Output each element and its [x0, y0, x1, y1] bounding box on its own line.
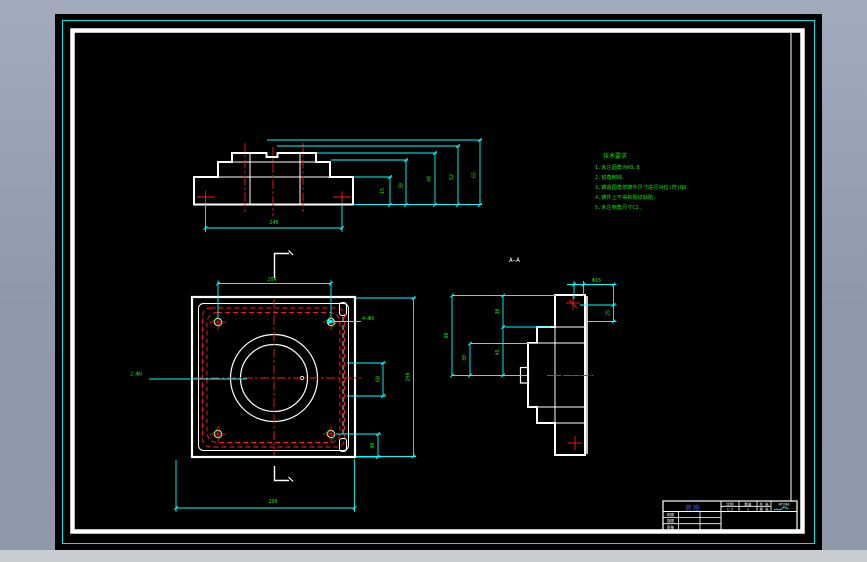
note-line: 1.未注圆角为R0.8 [595, 163, 640, 171]
note-line: 5.未注倒角尺寸C2. [595, 203, 642, 211]
row-label: 描图 [667, 518, 675, 523]
dim-text: 30 [462, 355, 468, 361]
dim-text: 25 [606, 310, 612, 316]
dim-text: 60 [376, 376, 382, 382]
note-line: 3.铸造圆角按铸件尺寸进行对位(符)N8. [595, 183, 690, 191]
dim-text: 290 [268, 499, 277, 505]
dim-text: 52 [449, 174, 455, 180]
material-value: HT200 [779, 502, 790, 506]
dim-text: 40 [427, 176, 433, 182]
dim-text: 290 [406, 372, 412, 381]
hole-callout: 4-Φ9 [362, 316, 374, 322]
dim-text: 245 [269, 220, 278, 226]
dim-text: 40 [370, 442, 376, 448]
sheet-label2: 第 张 [759, 507, 769, 512]
row-label: 制图 [667, 512, 675, 517]
hole-callout: 2-Φ8 [130, 372, 142, 378]
dim-text: 45 [495, 349, 501, 355]
dim-text: 30 [399, 183, 405, 189]
scale-label: 比例 [726, 501, 734, 506]
sheet-frame [55, 14, 822, 550]
part-name: 底座 [685, 503, 701, 512]
notes-title: 技术要求 [603, 152, 627, 160]
dim-text: 15 [380, 188, 386, 194]
row-label: 审核 [667, 524, 675, 529]
note-line: 4.铸件上不得有裂纹缺陷. [595, 193, 656, 201]
sheet-label: 共 张 [759, 501, 769, 506]
section-label: A—A [509, 257, 520, 264]
qty-label: 数量 [744, 501, 752, 506]
note-line: 2.锐角倒钝. [595, 173, 625, 181]
paper-margin [55, 14, 822, 550]
cad-drawing-canvas: 15 30 40 52 65 245 技术要求 1.未注圆角为R0.8 2.锐角… [0, 0, 867, 562]
dim-text: 30 [495, 308, 501, 314]
dim-text: 80 [444, 332, 450, 338]
dim-text: 204 [267, 277, 276, 283]
qty-value: 1 [747, 508, 749, 512]
scale-value: 1:2 [727, 508, 734, 512]
dim-text: Φ15 [592, 278, 601, 284]
dim-text: 65 [472, 172, 478, 178]
